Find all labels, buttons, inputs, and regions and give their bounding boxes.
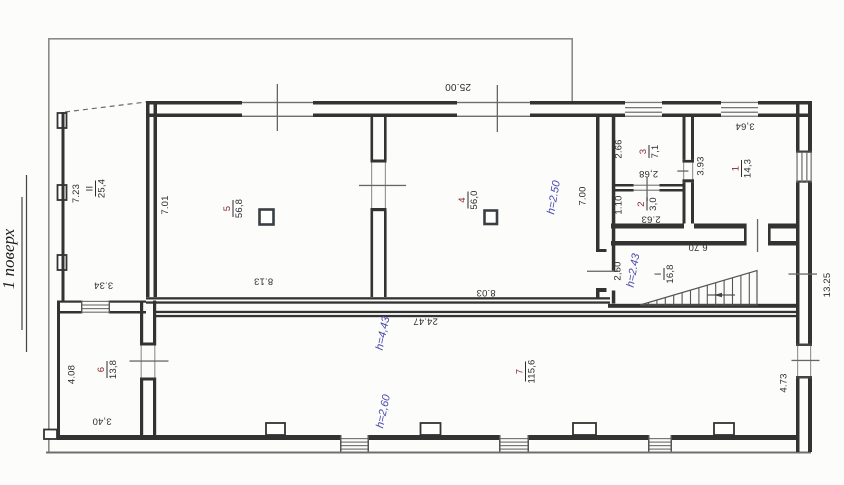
svg-text:13.25: 13.25 bbox=[822, 273, 833, 298]
svg-text:1 поверх: 1 поверх bbox=[0, 228, 18, 289]
svg-text:3: 3 bbox=[638, 149, 649, 154]
svg-text:56,0: 56,0 bbox=[469, 190, 480, 209]
svg-text:13,8: 13,8 bbox=[108, 360, 119, 379]
svg-text:3,0: 3,0 bbox=[648, 197, 659, 211]
svg-text:1.10: 1.10 bbox=[614, 195, 625, 214]
svg-text:1: 1 bbox=[731, 166, 742, 171]
svg-text:3,64: 3,64 bbox=[735, 121, 754, 132]
svg-text:25.00: 25.00 bbox=[445, 81, 471, 92]
svg-text:8.13: 8.13 bbox=[254, 276, 273, 287]
svg-text:3,40: 3,40 bbox=[92, 416, 111, 427]
svg-text:2,68: 2,68 bbox=[639, 168, 658, 179]
svg-text:6,70: 6,70 bbox=[688, 241, 707, 252]
svg-text:3.93: 3.93 bbox=[696, 156, 707, 175]
svg-text:115,6: 115,6 bbox=[527, 359, 538, 383]
svg-text:14,3: 14,3 bbox=[743, 159, 754, 178]
svg-text:3.34: 3.34 bbox=[94, 280, 113, 291]
svg-text:2,50: 2,50 bbox=[613, 261, 624, 280]
svg-text:56,8: 56,8 bbox=[234, 199, 245, 218]
svg-text:6: 6 bbox=[96, 367, 107, 372]
svg-text:I: I bbox=[653, 273, 664, 276]
svg-text:4.73: 4.73 bbox=[779, 373, 790, 392]
svg-text:8.03: 8.03 bbox=[476, 287, 495, 298]
svg-text:7.23: 7.23 bbox=[71, 184, 82, 203]
svg-text:4: 4 bbox=[457, 197, 468, 202]
svg-text:24.47: 24.47 bbox=[413, 316, 438, 327]
svg-text:2.66: 2.66 bbox=[614, 139, 625, 158]
svg-text:16,8: 16,8 bbox=[665, 264, 676, 283]
svg-text:7,1: 7,1 bbox=[650, 145, 661, 159]
svg-text:2.63: 2.63 bbox=[641, 214, 660, 225]
svg-text:5: 5 bbox=[222, 206, 233, 211]
svg-text:II: II bbox=[85, 186, 96, 192]
svg-text:2: 2 bbox=[636, 201, 647, 206]
svg-text:7.01: 7.01 bbox=[160, 195, 171, 214]
svg-text:7: 7 bbox=[515, 369, 526, 374]
svg-text:7.00: 7.00 bbox=[578, 186, 589, 205]
svg-text:4.08: 4.08 bbox=[67, 365, 78, 384]
svg-text:25,4: 25,4 bbox=[97, 179, 108, 198]
